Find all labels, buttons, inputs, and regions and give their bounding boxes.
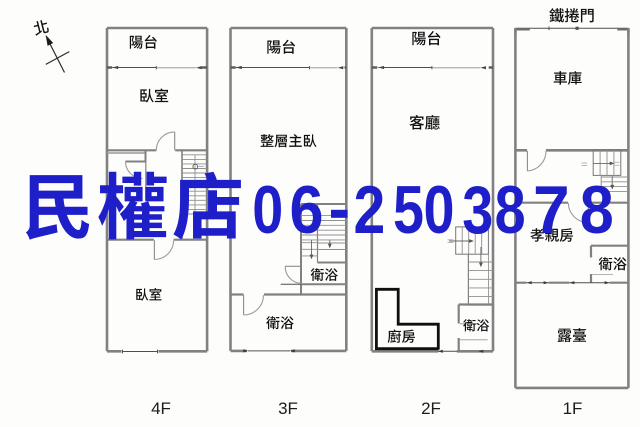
svg-text:3: 3 [462,173,493,248]
svg-text:5: 5 [393,173,424,248]
svg-text:4F: 4F [151,399,171,418]
svg-text:6: 6 [290,171,324,248]
svg-text:1F: 1F [563,399,583,418]
svg-text:7: 7 [533,172,570,248]
svg-text:0: 0 [252,173,283,248]
svg-text:8: 8 [495,173,526,248]
svg-text:8: 8 [580,171,614,248]
svg-text:2: 2 [354,172,386,248]
svg-text:2F: 2F [421,399,441,418]
svg-text:0: 0 [424,173,455,248]
svg-text:3F: 3F [278,399,298,418]
